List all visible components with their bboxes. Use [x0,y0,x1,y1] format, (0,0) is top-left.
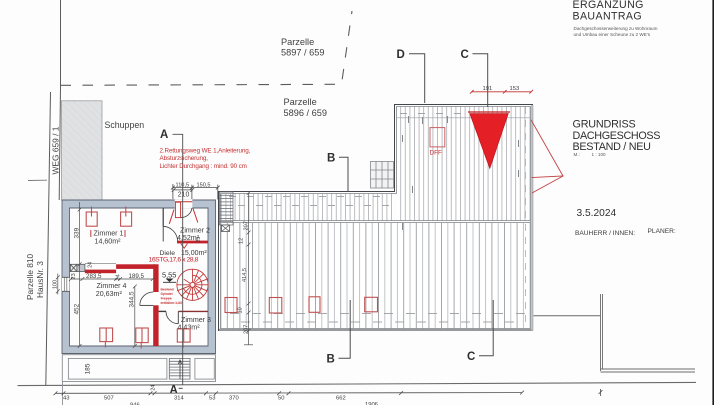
svg-text:1 : 100: 1 : 100 [592,152,606,157]
svg-text:5,55: 5,55 [162,271,176,280]
svg-text:507: 507 [104,395,114,401]
svg-text:24: 24 [115,274,121,280]
svg-text:Parzelle 810: Parzelle 810 [25,253,35,300]
svg-text:50: 50 [278,395,284,401]
svg-text:und Umbau einer Scheune zu 2 W: und Umbau einer Scheune zu 2 WE’s [574,32,651,37]
svg-text:314: 314 [174,395,184,401]
svg-text:10: 10 [238,307,244,313]
svg-text:24: 24 [151,385,157,391]
svg-text:185: 185 [85,363,92,374]
svg-text:20,63m²: 20,63m² [96,290,123,298]
svg-text:210: 210 [178,191,190,198]
svg-text:150,5: 150,5 [197,183,211,189]
svg-text:283,5: 283,5 [86,273,102,280]
svg-text:153: 153 [510,86,520,92]
svg-text:12: 12 [239,238,245,244]
svg-text:2.Rettungsweg WE 1,Anleiterung: 2.Rettungsweg WE 1,Anleiterung, [160,147,251,154]
svg-text:GRUNDRISS: GRUNDRISS [573,119,636,131]
svg-text:M.:: M.: [574,152,580,157]
svg-text:100: 100 [53,280,59,289]
svg-text:BAUANTRAG: BAUANTRAG [573,11,643,23]
svg-text:23: 23 [71,273,77,279]
svg-text:C: C [461,49,469,61]
svg-text:DFF: DFF [430,150,443,157]
svg-text:Parzelle: Parzelle [284,97,317,107]
svg-text:339: 339 [73,227,80,238]
svg-text:53: 53 [209,395,215,401]
svg-text:452: 452 [73,303,80,314]
svg-text:5897 / 659: 5897 / 659 [281,48,324,58]
svg-text:PLANER:: PLANER: [648,228,676,235]
svg-text:entfallen 1,80: entfallen 1,80 [161,301,183,305]
svg-text:HausNr. 3: HausNr. 3 [35,261,45,298]
svg-text:24: 24 [87,262,93,268]
svg-text:344,5: 344,5 [128,291,135,307]
svg-text:Schuppen: Schuppen [105,120,145,130]
svg-text:370: 370 [229,395,239,401]
svg-text:191: 191 [483,86,493,92]
svg-text:Zimmer 1: Zimmer 1 [94,230,124,238]
svg-text:A: A [160,129,168,141]
svg-text:BESTAND / NEU: BESTAND / NEU [573,141,651,153]
svg-text:Lichter Durchgang : mind. 90 c: Lichter Durchgang : mind. 90 cm [160,163,247,170]
svg-text:WEG 659 / 1: WEG 659 / 1 [51,126,61,174]
svg-text:4,43m²: 4,43m² [178,323,201,331]
svg-text:14,60m²: 14,60m² [95,238,122,246]
svg-text:B: B [327,354,335,366]
svg-text:C: C [467,351,475,363]
svg-text:207: 207 [243,221,249,230]
svg-text:BAUHERR / INNEN:: BAUHERR / INNEN: [575,230,635,237]
svg-text:Absturzsicherung,: Absturzsicherung, [160,155,209,162]
svg-text:3.5.2024: 3.5.2024 [577,208,617,219]
svg-text:Spindel: Spindel [161,292,173,296]
svg-text:662: 662 [336,395,346,401]
svg-text:110,5: 110,5 [176,183,190,189]
svg-text:414,5: 414,5 [242,268,248,282]
svg-text:Dachgeschosserweiterung zu Woh: Dachgeschosserweiterung zu Wohnraum [574,26,658,31]
svg-text:25: 25 [196,237,202,243]
svg-text:ERGÄNZUNG: ERGÄNZUNG [573,0,644,11]
svg-text:Bestand: Bestand [161,288,174,292]
svg-text:B: B [327,153,335,165]
svg-text:5896 / 659: 5896 / 659 [284,108,327,118]
svg-text:DACHGESCHOSS: DACHGESCHOSS [573,130,661,142]
svg-text:D: D [397,49,405,61]
svg-text:43: 43 [63,396,69,402]
svg-text:Parzelle: Parzelle [281,37,314,47]
svg-text:Treppe: Treppe [161,297,172,301]
svg-text:207: 207 [243,325,249,334]
svg-text:16STG,17,6 x 28,8: 16STG,17,6 x 28,8 [149,257,199,264]
svg-text:Zimmer 4: Zimmer 4 [97,282,127,290]
svg-text:189,5: 189,5 [129,273,145,280]
